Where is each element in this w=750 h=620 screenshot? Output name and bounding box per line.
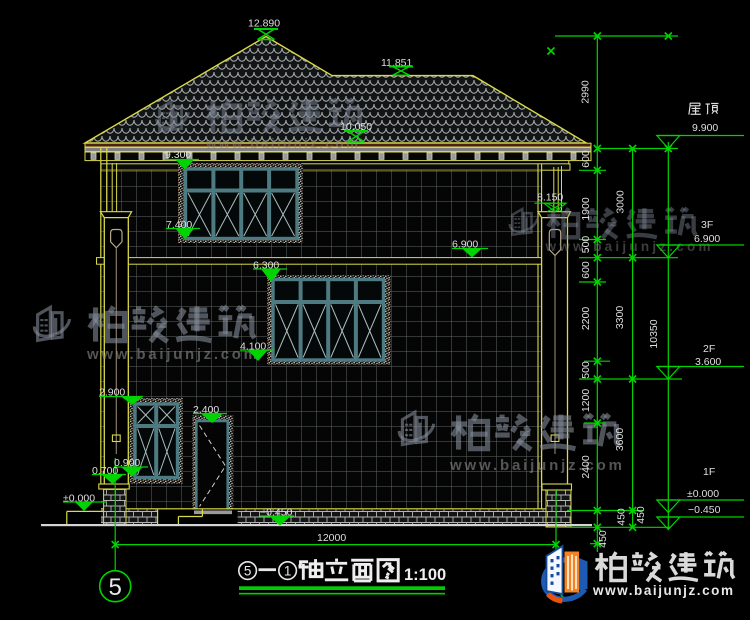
svg-text:500: 500: [580, 236, 592, 254]
svg-text:600: 600: [580, 150, 592, 168]
svg-text:9.900: 9.900: [692, 122, 718, 134]
svg-text:10350: 10350: [648, 319, 660, 348]
svg-text:3.600: 3.600: [695, 356, 721, 368]
svg-text:500: 500: [580, 361, 592, 379]
svg-text:5: 5: [109, 574, 122, 601]
svg-text:6.900: 6.900: [694, 233, 720, 245]
svg-text:1200: 1200: [580, 389, 592, 413]
svg-text:1:100: 1:100: [404, 566, 446, 584]
svg-text:600: 600: [580, 261, 592, 279]
svg-text:12.890: 12.890: [248, 18, 280, 30]
svg-text:450: 450: [597, 530, 609, 548]
svg-text:3F: 3F: [701, 219, 713, 231]
svg-text:2200: 2200: [580, 307, 592, 331]
svg-text:3600: 3600: [614, 428, 626, 452]
svg-text:12000: 12000: [317, 532, 346, 544]
svg-text:±0.000: ±0.000: [687, 488, 719, 500]
svg-text:5: 5: [244, 564, 252, 579]
svg-text:2990: 2990: [580, 80, 592, 104]
svg-text:3300: 3300: [614, 306, 626, 330]
svg-text:8.150: 8.150: [537, 192, 563, 204]
svg-text:450: 450: [616, 508, 628, 526]
svg-text:450: 450: [635, 506, 647, 524]
svg-text:2400: 2400: [580, 455, 592, 479]
svg-text:−0.450: −0.450: [688, 504, 721, 516]
svg-text:1900: 1900: [580, 197, 592, 221]
svg-text:3000: 3000: [615, 190, 627, 214]
svg-text:2F: 2F: [703, 343, 715, 355]
svg-text:1F: 1F: [703, 466, 715, 478]
svg-text:1: 1: [284, 564, 292, 579]
